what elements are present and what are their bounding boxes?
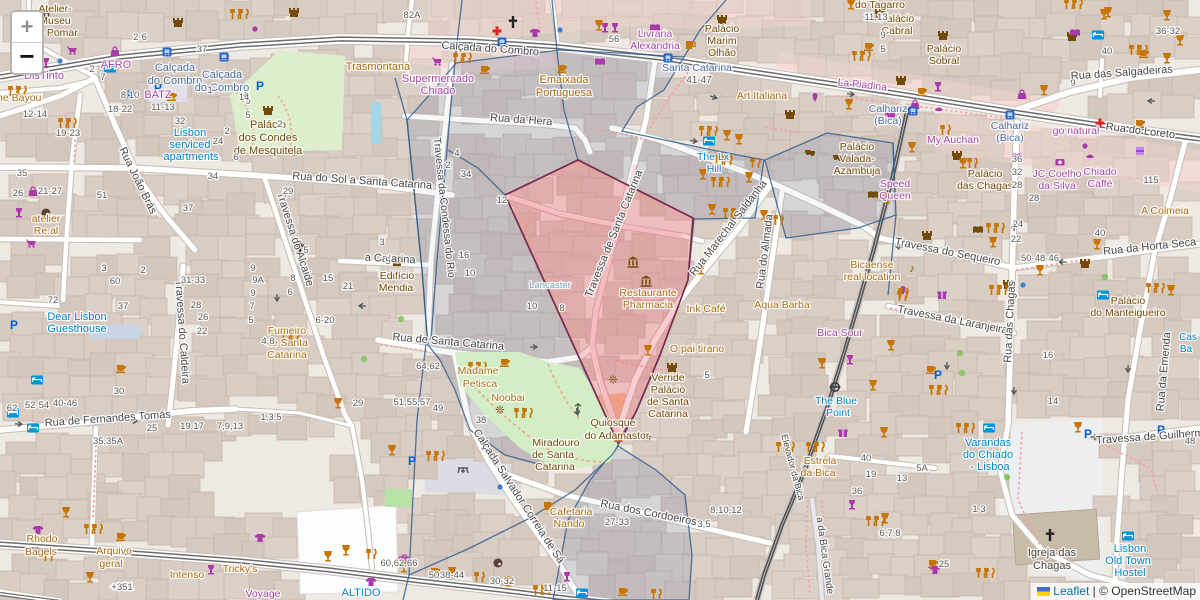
svg-text:Palácio: Palácio bbox=[651, 384, 686, 396]
svg-text:Calçada: Calçada bbox=[155, 62, 196, 74]
svg-text:The Blue: The Blue bbox=[815, 395, 857, 407]
svg-text:31·33: 31·33 bbox=[181, 275, 205, 286]
svg-text:Estrela: Estrela bbox=[804, 455, 837, 467]
svg-text:40: 40 bbox=[861, 453, 872, 464]
svg-text:- Lisboa: - Lisboa bbox=[970, 461, 1010, 473]
svg-text:49: 49 bbox=[433, 403, 444, 414]
svg-text:Petisca: Petisca bbox=[463, 378, 498, 390]
svg-text:3: 3 bbox=[101, 263, 106, 274]
svg-text:3: 3 bbox=[379, 237, 384, 248]
svg-text:Portuguesa: Portuguesa bbox=[536, 87, 593, 99]
svg-text:(Bica): (Bica) bbox=[874, 115, 901, 127]
svg-text:Old Town: Old Town bbox=[1105, 555, 1151, 567]
svg-text:8,10,12: 8,10,12 bbox=[710, 505, 742, 516]
svg-text:Lisbon: Lisbon bbox=[174, 127, 206, 139]
svg-text:Chiado: Chiado bbox=[421, 85, 456, 97]
svg-text:Calhariz: Calhariz bbox=[991, 120, 1030, 132]
svg-text:21·27: 21·27 bbox=[38, 186, 62, 197]
svg-text:38: 38 bbox=[476, 415, 487, 426]
svg-text:36·32: 36·32 bbox=[1156, 26, 1180, 37]
svg-text:10: 10 bbox=[465, 268, 476, 279]
svg-text:Chagas: Chagas bbox=[1033, 560, 1071, 572]
svg-text:12: 12 bbox=[497, 195, 508, 206]
svg-text:Dear Lisbon: Dear Lisbon bbox=[47, 311, 106, 323]
svg-text:Catarina: Catarina bbox=[648, 408, 688, 420]
svg-text:35,35A: 35,35A bbox=[93, 436, 124, 447]
svg-text:22: 22 bbox=[1011, 234, 1022, 245]
svg-text:35: 35 bbox=[17, 168, 28, 179]
svg-text:10: 10 bbox=[527, 301, 538, 312]
svg-text:P: P bbox=[934, 368, 942, 382]
svg-text:6,7,8: 6,7,8 bbox=[879, 528, 900, 539]
svg-text:5: 5 bbox=[385, 256, 390, 267]
svg-text:40: 40 bbox=[1095, 228, 1106, 239]
svg-text:Noobai: Noobai bbox=[491, 392, 524, 404]
svg-text:22: 22 bbox=[197, 326, 208, 337]
svg-text:8: 8 bbox=[559, 303, 564, 314]
svg-text:30-32: 30-32 bbox=[490, 576, 514, 587]
svg-text:37: 37 bbox=[183, 203, 194, 214]
svg-text:115: 115 bbox=[1143, 175, 1158, 186]
svg-text:Queen: Queen bbox=[879, 190, 911, 202]
svg-text:O pai tirano: O pai tirano bbox=[670, 343, 724, 355]
svg-text:40: 40 bbox=[1102, 46, 1113, 57]
svg-text:The Lx: The Lx bbox=[697, 151, 730, 163]
svg-text:14: 14 bbox=[239, 92, 250, 103]
svg-text:Varandas: Varandas bbox=[965, 437, 1012, 449]
svg-text:64,62: 64,62 bbox=[416, 361, 440, 372]
svg-text:Calhariz: Calhariz bbox=[869, 103, 908, 115]
svg-text:60,62,66: 60,62,66 bbox=[381, 558, 418, 569]
svg-text:28: 28 bbox=[191, 300, 202, 311]
svg-text:30: 30 bbox=[114, 386, 125, 397]
svg-text:19·23: 19·23 bbox=[56, 128, 80, 139]
svg-text:51,55,57: 51,55,57 bbox=[394, 397, 431, 408]
svg-text:6·20: 6·20 bbox=[315, 315, 334, 326]
svg-text:Speed: Speed bbox=[880, 178, 911, 190]
svg-text:36: 36 bbox=[852, 486, 863, 497]
svg-text:29: 29 bbox=[283, 186, 294, 197]
svg-text:16: 16 bbox=[459, 250, 470, 261]
svg-text:Supermercado: Supermercado bbox=[402, 73, 474, 85]
svg-text:+351: +351 bbox=[111, 582, 132, 593]
svg-text:9: 9 bbox=[880, 30, 885, 41]
svg-text:3,5: 3,5 bbox=[697, 519, 710, 530]
svg-text:5: 5 bbox=[245, 110, 250, 121]
svg-text:Caffé: Caffé bbox=[1088, 178, 1113, 190]
svg-text:82A: 82A bbox=[404, 10, 422, 21]
svg-text:28: 28 bbox=[1012, 180, 1023, 191]
svg-text:Tricky's: Tricky's bbox=[223, 563, 258, 575]
svg-text:Bicaense: Bicaense bbox=[850, 259, 893, 271]
svg-text:29: 29 bbox=[353, 398, 364, 409]
svg-text:Catarina: Catarina bbox=[267, 349, 307, 361]
svg-text:da Silva: da Silva bbox=[1038, 180, 1076, 192]
svg-text:Cafetaria: Cafetaria bbox=[550, 506, 593, 518]
svg-text:8: 8 bbox=[290, 273, 295, 284]
svg-text:Sobral: Sobral bbox=[929, 55, 959, 67]
svg-text:36: 36 bbox=[1012, 154, 1023, 165]
svg-text:5: 5 bbox=[880, 44, 885, 55]
svg-text:Lisbon: Lisbon bbox=[1114, 543, 1146, 555]
svg-text:Emaixada: Emaixada bbox=[540, 74, 590, 86]
svg-text:5: 5 bbox=[303, 245, 308, 256]
svg-text:2: 2 bbox=[445, 160, 450, 171]
svg-text:Cabral: Cabral bbox=[882, 25, 913, 37]
svg-text:24: 24 bbox=[1013, 219, 1024, 230]
svg-text:Guesthouse: Guesthouse bbox=[47, 323, 106, 335]
svg-text:41-47: 41-47 bbox=[686, 75, 712, 86]
svg-text:28: 28 bbox=[1029, 193, 1040, 204]
svg-text:Edifício: Edifício bbox=[380, 270, 415, 282]
svg-text:atelier: atelier bbox=[32, 213, 61, 225]
svg-text:Pharmacia: Pharmacia bbox=[623, 299, 673, 311]
svg-text:27-33: 27-33 bbox=[605, 517, 629, 528]
svg-text:14: 14 bbox=[1048, 396, 1059, 407]
svg-text:18·22: 18·22 bbox=[108, 104, 132, 115]
svg-text:25: 25 bbox=[147, 423, 158, 434]
svg-text:1: 1 bbox=[207, 85, 212, 96]
svg-text:BATZ: BATZ bbox=[144, 89, 172, 101]
svg-text:Restaurante: Restaurante bbox=[619, 287, 676, 299]
svg-text:40-46: 40-46 bbox=[53, 398, 77, 409]
svg-text:❊: ❊ bbox=[495, 405, 504, 417]
svg-text:Arquivo: Arquivo bbox=[96, 545, 132, 557]
svg-text:Ink Café: Ink Café bbox=[686, 303, 725, 315]
svg-text:8 10: 8 10 bbox=[121, 90, 140, 101]
svg-text:das Chagas: das Chagas bbox=[957, 180, 1013, 192]
svg-text:19: 19 bbox=[866, 469, 877, 480]
svg-text:34: 34 bbox=[208, 171, 219, 182]
svg-text:4,8: 4,8 bbox=[261, 336, 274, 347]
svg-text:P: P bbox=[10, 318, 18, 332]
svg-text:P: P bbox=[408, 454, 416, 468]
svg-text:15: 15 bbox=[323, 273, 334, 284]
svg-text:Palácio: Palácio bbox=[1111, 295, 1146, 307]
svg-text:Hostel: Hostel bbox=[1114, 567, 1145, 579]
svg-text:Rhodo: Rhodo bbox=[27, 533, 58, 545]
svg-text:72: 72 bbox=[48, 295, 59, 306]
svg-text:Miradouro: Miradouro bbox=[532, 437, 579, 449]
svg-text:de Santa: de Santa bbox=[647, 396, 689, 408]
svg-text:60: 60 bbox=[110, 276, 121, 287]
svg-text:Nando: Nando bbox=[554, 518, 585, 530]
svg-text:Valada-: Valada- bbox=[839, 153, 875, 165]
svg-text:56: 56 bbox=[609, 34, 620, 45]
svg-text:Voyage: Voyage bbox=[245, 588, 280, 600]
svg-text:38-44: 38-44 bbox=[440, 570, 464, 581]
svg-text:Palácio: Palácio bbox=[968, 168, 1003, 180]
svg-text:11-15: 11-15 bbox=[543, 583, 567, 594]
svg-text:9: 9 bbox=[250, 288, 255, 299]
svg-text:Igreja das: Igreja das bbox=[1028, 547, 1077, 559]
svg-text:Bica Sour: Bica Sour bbox=[817, 327, 863, 339]
svg-text:Ba: Ba bbox=[1180, 344, 1193, 355]
svg-text:The Bayou: The Bayou bbox=[0, 92, 42, 104]
svg-text:50·48·46: 50·48·46 bbox=[1021, 253, 1059, 264]
svg-text:My Auchan: My Auchan bbox=[927, 134, 979, 146]
svg-text:Catarina: Catarina bbox=[535, 461, 575, 473]
svg-text:13: 13 bbox=[897, 473, 908, 484]
svg-text:52·54: 52·54 bbox=[25, 400, 49, 411]
svg-text:de Mesquitela: de Mesquitela bbox=[234, 145, 303, 157]
svg-text:Re.al: Re.al bbox=[34, 225, 59, 237]
svg-text:25: 25 bbox=[939, 559, 950, 570]
svg-text:37: 37 bbox=[197, 44, 208, 55]
svg-text:26: 26 bbox=[198, 312, 209, 323]
svg-text:P: P bbox=[1084, 427, 1092, 441]
svg-text:26: 26 bbox=[13, 188, 24, 199]
svg-text:5: 5 bbox=[248, 315, 253, 326]
svg-text:real location: real location bbox=[844, 271, 901, 283]
svg-text:1 3: 1 3 bbox=[972, 504, 985, 515]
svg-text:11,13: 11,13 bbox=[864, 12, 887, 23]
svg-text:AFRO: AFRO bbox=[101, 59, 132, 71]
svg-text:6: 6 bbox=[233, 152, 238, 163]
svg-text:1,3,5: 1,3,5 bbox=[260, 412, 281, 423]
svg-text:Alexandria: Alexandria bbox=[630, 40, 680, 52]
svg-text:50: 50 bbox=[429, 570, 440, 581]
svg-text:16: 16 bbox=[1043, 350, 1054, 361]
svg-text:ALTIDO: ALTIDO bbox=[342, 587, 381, 599]
svg-text:Trasmontana: Trasmontana bbox=[346, 61, 411, 73]
svg-text:11-13: 11-13 bbox=[151, 102, 175, 113]
svg-text:9: 9 bbox=[250, 263, 255, 274]
svg-text:62: 62 bbox=[7, 403, 18, 414]
svg-text:(Bica): (Bica) bbox=[996, 132, 1023, 144]
svg-text:32: 32 bbox=[175, 116, 186, 127]
svg-text:19 17: 19 17 bbox=[180, 421, 204, 432]
svg-text:geral: geral bbox=[99, 558, 122, 570]
svg-text:9A: 9A bbox=[252, 275, 264, 286]
svg-text:Quiosque: Quiosque bbox=[591, 417, 636, 429]
svg-text:Chiado: Chiado bbox=[1083, 166, 1116, 178]
svg-text:♪: ♪ bbox=[909, 263, 915, 275]
svg-text:P: P bbox=[256, 79, 264, 93]
svg-text:37: 37 bbox=[118, 301, 129, 312]
svg-text:do Chiado: do Chiado bbox=[963, 449, 1013, 461]
svg-text:Intenso: Intenso bbox=[170, 569, 205, 581]
svg-text:Point: Point bbox=[826, 407, 850, 419]
svg-text:da Bica: da Bica bbox=[800, 467, 835, 479]
svg-text:7: 7 bbox=[100, 72, 105, 83]
svg-text:5A: 5A bbox=[916, 463, 928, 474]
svg-text:Palácio: Palácio bbox=[705, 23, 740, 35]
svg-text:34: 34 bbox=[461, 169, 472, 180]
svg-text:24: 24 bbox=[213, 136, 224, 147]
svg-text:6: 6 bbox=[287, 287, 292, 298]
svg-text:Verride: Verride bbox=[651, 372, 684, 384]
svg-text:2: 2 bbox=[277, 119, 282, 130]
svg-text:Azambuja: Azambuja bbox=[834, 165, 881, 177]
svg-text:2·6: 2·6 bbox=[133, 32, 147, 43]
svg-text:12·14: 12·14 bbox=[23, 109, 47, 120]
svg-text:Cas: Cas bbox=[1179, 332, 1197, 343]
svg-text:❊: ❊ bbox=[608, 375, 617, 387]
svg-text:2: 2 bbox=[89, 64, 94, 75]
svg-text:2: 2 bbox=[140, 265, 145, 276]
svg-text:serviced: serviced bbox=[170, 139, 211, 151]
svg-text:48: 48 bbox=[1185, 436, 1196, 447]
svg-text:2: 2 bbox=[224, 126, 229, 137]
svg-text:Hill: Hill bbox=[707, 163, 722, 175]
svg-text:4: 4 bbox=[454, 148, 459, 159]
svg-text:A Colmeia: A Colmeia bbox=[1141, 205, 1189, 217]
svg-text:de Santa: de Santa bbox=[532, 449, 574, 461]
svg-text:Art Italiana: Art Italiana bbox=[737, 90, 787, 102]
svg-text:Santa Catarina: Santa Catarina bbox=[662, 62, 732, 74]
svg-text:go natural: go natural bbox=[1053, 125, 1100, 137]
svg-text:dos Condes: dos Condes bbox=[239, 132, 298, 144]
svg-text:Bagels: Bagels bbox=[25, 546, 57, 558]
svg-text:Aqua Barba: Aqua Barba bbox=[754, 299, 810, 311]
svg-text:7: 7 bbox=[249, 301, 254, 312]
svg-text:do Adamastor: do Adamastor bbox=[585, 430, 650, 442]
svg-text:Palácio: Palácio bbox=[840, 141, 875, 153]
svg-text:32: 32 bbox=[1012, 167, 1023, 178]
svg-text:Lancaster: Lancaster bbox=[529, 280, 571, 291]
svg-text:Madame: Madame bbox=[458, 365, 499, 377]
svg-text:9: 9 bbox=[1070, 78, 1075, 89]
svg-text:7,9,13: 7,9,13 bbox=[217, 421, 243, 432]
svg-text:5: 5 bbox=[704, 370, 709, 381]
svg-text:Olhão: Olhão bbox=[708, 47, 736, 59]
svg-text:21: 21 bbox=[343, 281, 354, 292]
svg-text:apartments: apartments bbox=[163, 151, 219, 163]
svg-text:Mendia: Mendia bbox=[379, 282, 414, 294]
svg-text:Palácio: Palácio bbox=[927, 43, 962, 55]
svg-text:JC Coelho: JC Coelho bbox=[1032, 168, 1081, 180]
svg-text:51: 51 bbox=[97, 190, 108, 201]
svg-text:Marim: Marim bbox=[707, 35, 736, 47]
svg-text:Livraria: Livraria bbox=[638, 28, 673, 40]
svg-text:do Tagarro: do Tagarro bbox=[855, 0, 905, 11]
svg-text:Calçada: Calçada bbox=[202, 69, 243, 81]
svg-text:do Manteigueiro: do Manteigueiro bbox=[1090, 307, 1165, 319]
